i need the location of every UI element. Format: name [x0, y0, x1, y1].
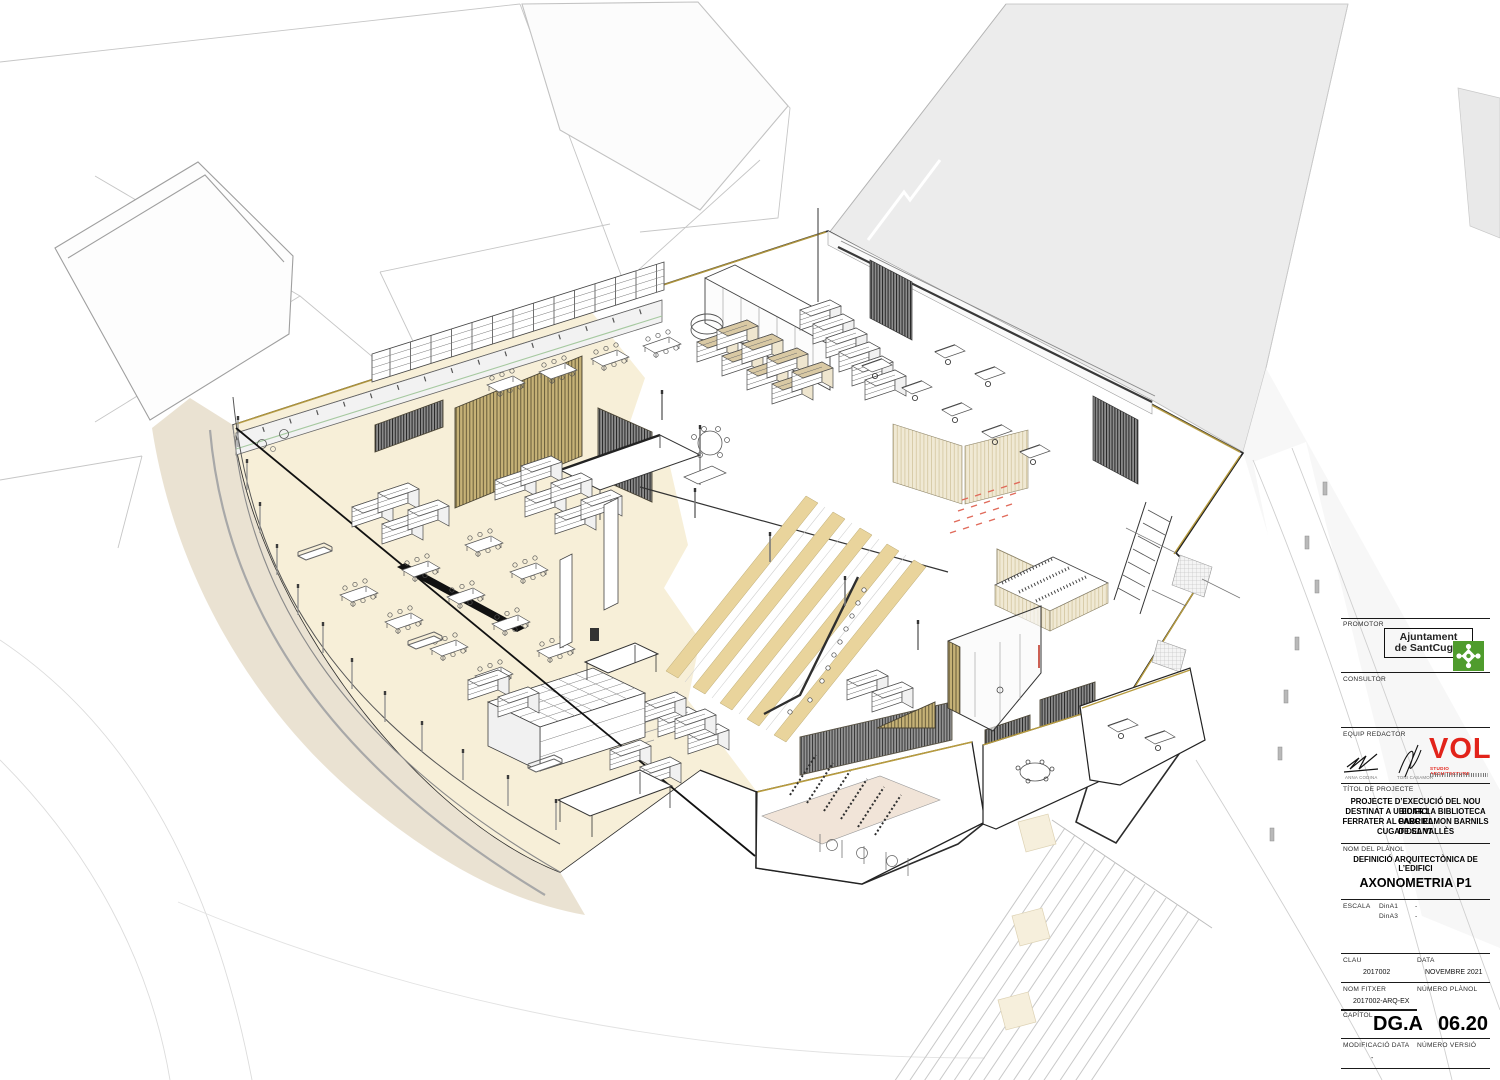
- signer1-name: ANNA CODINA: [1345, 775, 1377, 780]
- context-stair-ramp: [890, 814, 1212, 1080]
- escala-format1: DinA1: [1379, 903, 1398, 910]
- signer2-name: TONI CASAMOR: [1397, 775, 1433, 780]
- clau-value: 2017002: [1363, 969, 1390, 976]
- escala-value1: -: [1415, 903, 1417, 910]
- numero-versio-label: NÚMERO VERSIÓ: [1417, 1042, 1476, 1049]
- data-label: DATA: [1417, 957, 1435, 964]
- title-block: PROMOTOR Ajuntament de SantCugat CONSULT…: [1341, 615, 1490, 1075]
- promotor-label: PROMOTOR: [1343, 621, 1384, 628]
- modificacio-label: MODIFICACIÓ DATA: [1343, 1042, 1409, 1049]
- escala-label: ESCALA: [1343, 903, 1371, 910]
- numero-planol-value: 06.20: [1438, 1013, 1488, 1036]
- capitol-value: DG.A: [1373, 1013, 1423, 1036]
- nom-fitxer-value: 2017002-ARQ-EX: [1353, 998, 1409, 1005]
- vol-logo-microtext: [1430, 773, 1488, 777]
- plan-sheet: PROMOTOR Ajuntament de SantCugat CONSULT…: [0, 0, 1500, 1080]
- project-title-line4: CUGAT DEL VALLÈS: [1341, 827, 1490, 837]
- clau-label: CLAU: [1343, 957, 1362, 964]
- bin-icon: [590, 628, 599, 641]
- plan-name: DEFINICIÓ ARQUITECTÒNICA DE L’EDIFICI: [1341, 855, 1490, 873]
- nom-planol-label: NOM DEL PLÀNOL: [1343, 846, 1404, 853]
- escala-format2: DinA3: [1379, 913, 1398, 920]
- consultor-label: CONSULTOR: [1343, 676, 1386, 683]
- vol-logo: VOL: [1429, 735, 1492, 764]
- axonometric-drawing: [0, 0, 1500, 1080]
- santcugat-emblem-icon: [1453, 641, 1484, 671]
- capitol-label: CAPÍTOL: [1343, 1012, 1373, 1019]
- escala-value2: -: [1415, 913, 1417, 920]
- modificacio-value: -: [1371, 1055, 1373, 1062]
- nom-fitxer-label: NOM FITXER: [1343, 986, 1386, 993]
- numero-planol-label: NÚMERO PLÀNOL: [1417, 986, 1477, 993]
- drawing-title: AXONOMETRIA P1: [1341, 876, 1490, 890]
- signatures: [1341, 737, 1426, 777]
- titol-projecte-label: TÍTOL DE PROJECTE: [1343, 786, 1414, 793]
- data-value: NOVEMBRE 2021: [1425, 969, 1483, 976]
